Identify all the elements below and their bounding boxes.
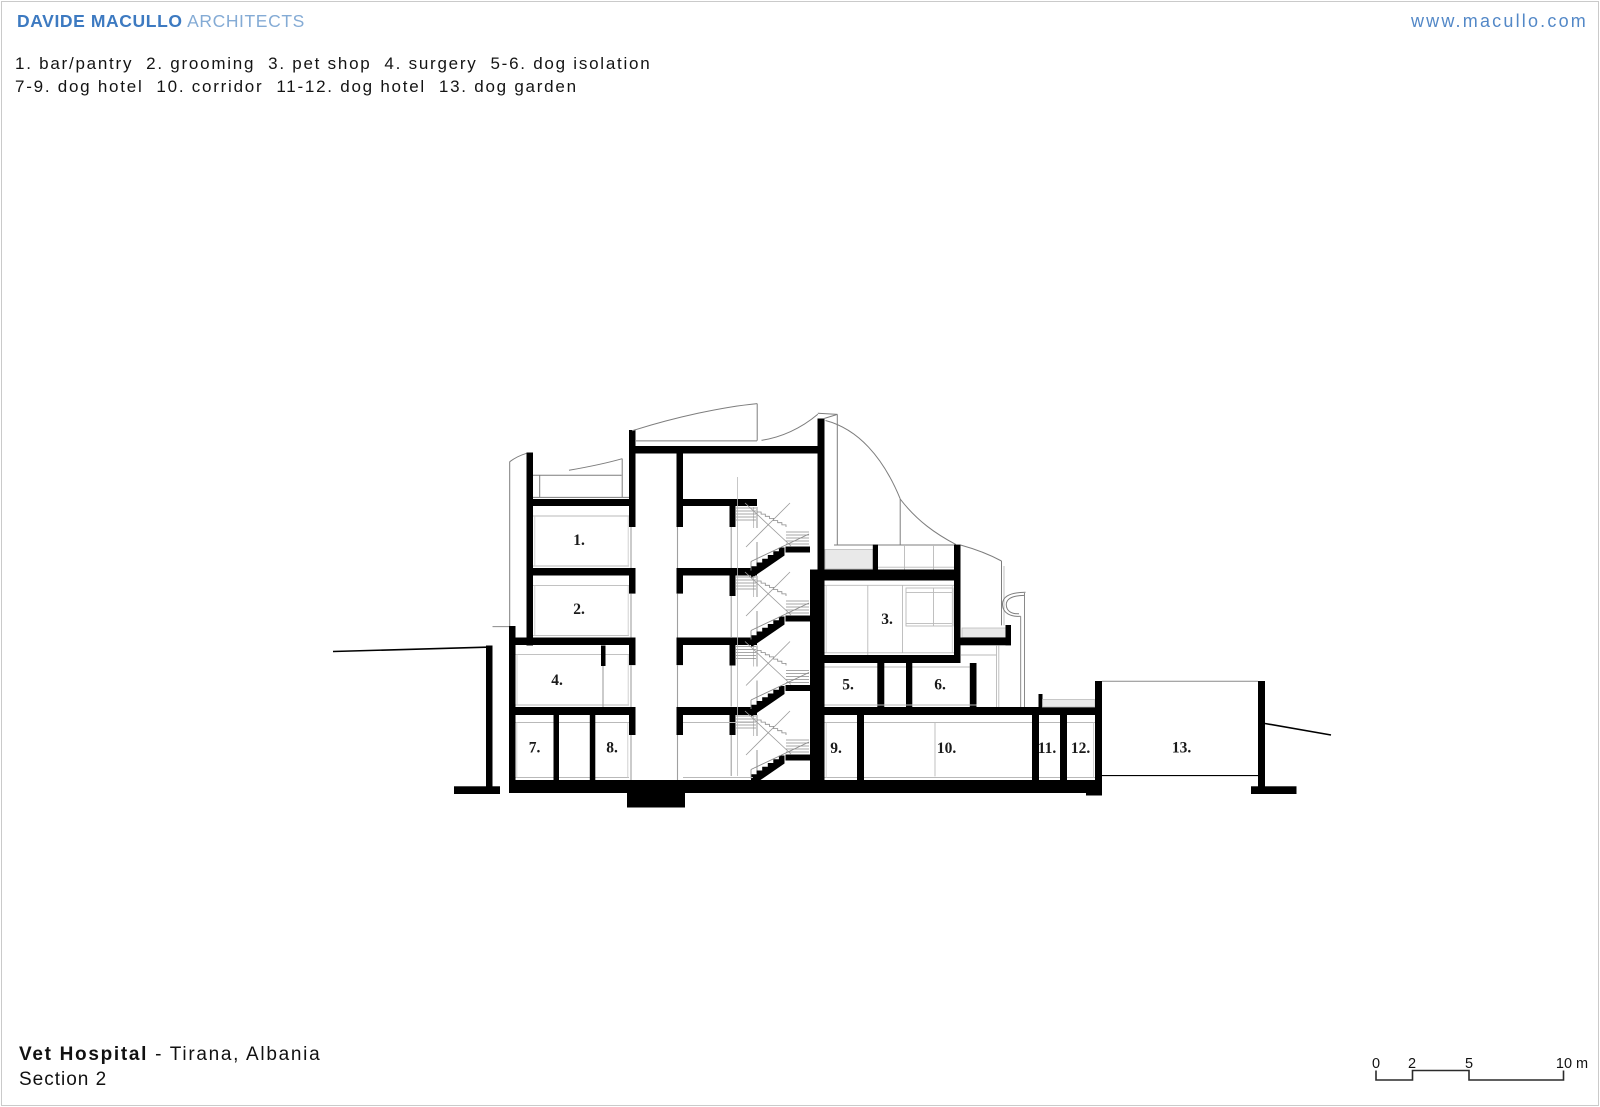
svg-text:13.: 13. [1172, 740, 1192, 757]
svg-text:5.: 5. [842, 677, 854, 694]
svg-text:2.: 2. [573, 601, 585, 618]
svg-text:8.: 8. [606, 740, 618, 757]
svg-text:3.: 3. [881, 611, 893, 628]
svg-text:12.: 12. [1071, 740, 1091, 757]
svg-text:0: 0 [1372, 1056, 1380, 1072]
svg-text:7.: 7. [529, 740, 541, 757]
svg-text:5: 5 [1465, 1056, 1473, 1072]
svg-text:9.: 9. [830, 740, 842, 757]
svg-text:11.: 11. [1038, 740, 1057, 757]
svg-text:2: 2 [1408, 1056, 1416, 1072]
svg-text:4.: 4. [551, 672, 563, 689]
svg-text:10 m: 10 m [1556, 1056, 1588, 1072]
svg-text:10.: 10. [937, 740, 957, 757]
svg-text:6.: 6. [934, 677, 946, 694]
svg-text:1.: 1. [573, 532, 585, 549]
